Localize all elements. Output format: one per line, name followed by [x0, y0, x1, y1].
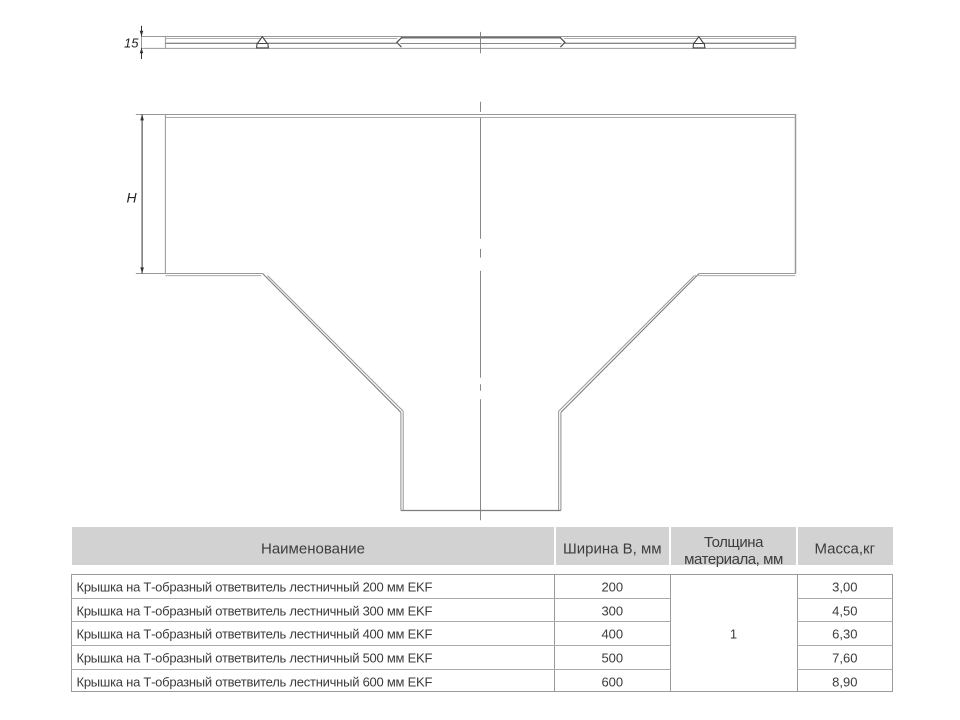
svg-text:15: 15: [124, 35, 139, 50]
svg-text:H: H: [126, 190, 137, 206]
